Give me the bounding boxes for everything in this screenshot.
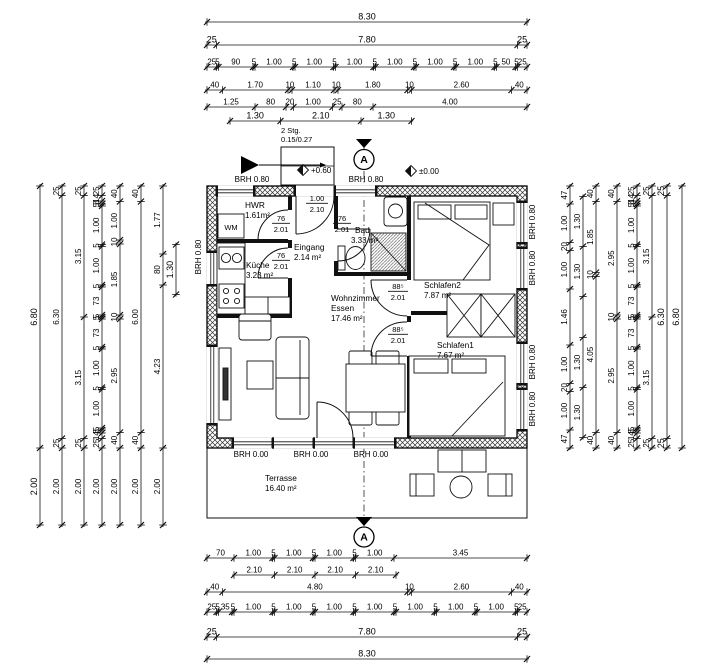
room-name-hwr: HWR bbox=[245, 200, 265, 210]
dim-label: 5 bbox=[433, 603, 438, 612]
living-room-furniture bbox=[219, 314, 309, 420]
dim-label: 2.10 bbox=[246, 566, 262, 575]
door-size-schlafen2-door: 88⁵ bbox=[392, 282, 403, 291]
dim-label: 25 bbox=[207, 35, 217, 45]
dim-label: 1.30 bbox=[573, 404, 582, 420]
room-name-kueche: Küche bbox=[246, 260, 270, 270]
door-size-schlafen2-door: 2.01 bbox=[391, 293, 406, 302]
dim-label: 1.00 bbox=[305, 98, 321, 107]
dim-label: 3.15 bbox=[74, 248, 83, 264]
dim-label: 1.77 bbox=[153, 212, 162, 228]
dim-label: 1.00 bbox=[245, 549, 261, 558]
dim-label: 2.00 bbox=[110, 478, 119, 494]
dim-label: 5 bbox=[453, 58, 458, 67]
dim-label: 70 bbox=[216, 549, 225, 558]
dim-label: 1.00 bbox=[627, 400, 636, 416]
dim-label: 5 bbox=[627, 243, 636, 248]
floor-plan-drawing: 8.30257.80252559051.0051.0051.0051.0051.… bbox=[0, 0, 714, 672]
dim-label: 1.00 bbox=[560, 215, 569, 231]
dim-label: 4.05 bbox=[586, 346, 595, 362]
dim-label: 25 bbox=[52, 438, 61, 447]
dim-label: 1.00 bbox=[266, 58, 282, 67]
room-area-bad: 3.33 m² bbox=[351, 236, 378, 245]
dim-label: 1.00 bbox=[627, 257, 636, 273]
dim-label: 5 bbox=[413, 58, 418, 67]
door-size-schlafen1-door: 2.01 bbox=[391, 336, 406, 345]
dim-label: 1.00 bbox=[407, 603, 423, 612]
brh-label: BRH 0.00 bbox=[234, 450, 269, 459]
terrace-furniture bbox=[410, 450, 512, 498]
dining-set bbox=[346, 351, 405, 425]
dim-label: 47 bbox=[560, 434, 569, 443]
dim-label: 10 bbox=[405, 583, 414, 592]
dim-label: 1.10 bbox=[305, 81, 321, 90]
room-name-terrasse: Terrasse bbox=[265, 473, 297, 483]
dim-label: 5 bbox=[92, 315, 101, 320]
dim-label: 73 bbox=[92, 296, 101, 305]
dim-label: 1.30 bbox=[573, 263, 582, 279]
dim-label: 47 bbox=[560, 190, 569, 199]
dim-label: 10 bbox=[607, 312, 616, 321]
dim-label: 1.46 bbox=[560, 309, 569, 325]
dim-label: 7.80 bbox=[358, 627, 376, 637]
dim-label: 4.80 bbox=[307, 583, 323, 592]
dim-label: 1.00 bbox=[560, 402, 569, 418]
dim-label: 1.70 bbox=[247, 81, 263, 90]
dim-label: 8.30 bbox=[358, 12, 376, 22]
dim-label: 1.30 bbox=[573, 354, 582, 370]
dim-label: 40 bbox=[210, 583, 219, 592]
dim-label: 5 bbox=[231, 603, 236, 612]
door-size-bad-door: 2.01 bbox=[335, 225, 350, 234]
dim-label: 6.00 bbox=[131, 309, 140, 325]
dim-label: 5 bbox=[92, 345, 101, 350]
brh-label: BRH 0.80 bbox=[349, 175, 384, 184]
dim-label: 40 bbox=[210, 81, 219, 90]
dim-label: 5 bbox=[271, 549, 276, 558]
dim-label: 80 bbox=[153, 265, 162, 274]
dim-label: 2.60 bbox=[454, 81, 470, 90]
dim-label: 1.00 bbox=[627, 217, 636, 233]
dim-label: 3.15 bbox=[642, 248, 651, 264]
door-size-hwr-door: 76 bbox=[277, 214, 285, 223]
brh-label: BRH 0.00 bbox=[294, 450, 329, 459]
dim-label: 5 bbox=[92, 386, 101, 391]
dim-label: 25 bbox=[518, 603, 527, 612]
dim-label: 14 bbox=[627, 431, 636, 440]
dim-label: 2.00 bbox=[131, 478, 140, 494]
dim-label: 40 bbox=[586, 189, 595, 198]
room-name-schlafen1: Schlafen1 bbox=[437, 340, 474, 350]
dim-label: 40 bbox=[131, 435, 140, 444]
dim-label: 40 bbox=[110, 435, 119, 444]
dim-label: 1.00 bbox=[560, 261, 569, 277]
dim-label: 1.00 bbox=[110, 212, 119, 228]
dim-label: 2.60 bbox=[454, 583, 470, 592]
dim-label: 1.30 bbox=[378, 111, 396, 121]
dim-label: 5 bbox=[332, 58, 337, 67]
stairs-note: 0.15/0.27 bbox=[281, 135, 312, 144]
dim-label: 1.30 bbox=[246, 111, 264, 121]
room-name-eingang: Eingang bbox=[294, 242, 325, 252]
dim-label: 5 bbox=[627, 283, 636, 288]
dim-label: 5 bbox=[312, 603, 317, 612]
dim-label: 5 bbox=[92, 283, 101, 288]
dim-label: 5 bbox=[215, 603, 220, 612]
dim-label: 80 bbox=[353, 98, 362, 107]
level-ground: ±0.00 bbox=[419, 167, 440, 176]
wardrobe bbox=[447, 294, 515, 337]
dim-label: 25 bbox=[518, 58, 527, 67]
dim-label: 40 bbox=[110, 189, 119, 198]
dim-label: 73 bbox=[627, 328, 636, 337]
dim-label: 25 bbox=[517, 35, 527, 45]
dim-label: 25 bbox=[74, 186, 83, 195]
dim-label: 2.95 bbox=[607, 250, 616, 266]
dim-label: 25 bbox=[656, 438, 666, 448]
dim-label: 35 bbox=[221, 603, 230, 612]
dim-label: 1.00 bbox=[326, 603, 342, 612]
dim-label: 10 bbox=[110, 237, 119, 246]
dim-label: 2.10 bbox=[312, 111, 330, 121]
dim-label: 1.00 bbox=[560, 356, 569, 372]
dim-label: 25 bbox=[627, 186, 636, 195]
dim-label: 2.00 bbox=[92, 478, 101, 494]
door-size-bad-door: 76 bbox=[338, 214, 346, 223]
dim-label: 5 bbox=[393, 603, 398, 612]
dim-label: 40 bbox=[131, 189, 140, 198]
bed-schlafen2 bbox=[414, 202, 514, 280]
dim-label: 1.00 bbox=[245, 603, 261, 612]
dim-label: 25 bbox=[642, 186, 651, 195]
dim-label: 10 bbox=[332, 81, 341, 90]
dim-label: 1.00 bbox=[387, 58, 403, 67]
dim-label: 25 bbox=[333, 98, 342, 107]
dim-label: 20 bbox=[560, 383, 569, 392]
brh-label: BRH 0.80 bbox=[528, 250, 537, 285]
dim-label: 1.80 bbox=[365, 81, 381, 90]
dim-label: 73 bbox=[92, 328, 101, 337]
dim-label: 5 bbox=[372, 58, 377, 67]
dim-label: 50 bbox=[501, 58, 510, 67]
room-name2-wohnzimmer: Essen bbox=[331, 303, 354, 313]
dim-label: 73 bbox=[627, 296, 636, 305]
dim-label: 1.00 bbox=[92, 360, 101, 376]
dim-label: 10 bbox=[110, 312, 119, 321]
door-size-schlafen1-door: 88⁵ bbox=[392, 325, 403, 334]
dim-label: 1.00 bbox=[286, 549, 302, 558]
dim-label: 10 bbox=[586, 270, 595, 279]
dim-label: 10 bbox=[405, 81, 414, 90]
dim-label: 40 bbox=[607, 435, 616, 444]
room-area-schlafen2: 7.87 m² bbox=[424, 291, 451, 300]
dim-label: 1.00 bbox=[347, 58, 363, 67]
dim-label: 25 bbox=[74, 438, 83, 447]
brh-label: BRH 0.80 bbox=[528, 391, 537, 426]
dim-label: 25 bbox=[656, 186, 666, 196]
dim-label: 5 bbox=[352, 603, 357, 612]
dim-label: 14 bbox=[92, 431, 101, 440]
brh-label: BRH 0.00 bbox=[354, 450, 389, 459]
dim-label: 4.23 bbox=[153, 358, 162, 374]
dim-label: 1.00 bbox=[367, 549, 383, 558]
dim-label: 1.00 bbox=[286, 603, 302, 612]
dim-label: 1.30 bbox=[573, 213, 582, 229]
dim-label: 25 bbox=[642, 438, 651, 447]
dim-label: 1.00 bbox=[92, 217, 101, 233]
room-area-eingang: 2.14 m² bbox=[294, 253, 321, 262]
dim-label: 1.00 bbox=[467, 58, 483, 67]
dim-label: 5 bbox=[215, 58, 220, 67]
brh-label: BRH 0.80 bbox=[528, 204, 537, 239]
dim-label: 5 bbox=[312, 549, 317, 558]
dim-label: 3.15 bbox=[74, 369, 83, 385]
section-letter-top: A bbox=[360, 154, 368, 166]
dim-label: 3.15 bbox=[642, 369, 651, 385]
dim-label: 5 bbox=[92, 243, 101, 248]
dim-label: 25 bbox=[92, 186, 101, 195]
door-size-entrance-door: 1.00 bbox=[310, 194, 325, 203]
door-size-entrance-door: 2.10 bbox=[310, 205, 325, 214]
brh-label: BRH 0.80 bbox=[194, 239, 203, 274]
brh-label: BRH 0.80 bbox=[235, 175, 270, 184]
dim-label: 5 bbox=[627, 386, 636, 391]
dim-label: 8.30 bbox=[358, 649, 376, 659]
dim-label: 2.10 bbox=[368, 566, 384, 575]
room-area-wohnzimmer: 17.46 m² bbox=[331, 314, 363, 323]
dim-label: 5 bbox=[252, 58, 257, 67]
dim-label: 25 bbox=[207, 627, 217, 637]
dim-label: 5 bbox=[474, 603, 479, 612]
door-size-kueche-door: 2.01 bbox=[274, 262, 289, 271]
dim-label: 25 bbox=[52, 186, 61, 195]
dim-label: 2.00 bbox=[52, 478, 61, 494]
dim-label: 6.80 bbox=[29, 308, 39, 326]
dim-label: 40 bbox=[586, 435, 595, 444]
dim-label: 40 bbox=[515, 583, 524, 592]
door-size-hwr-door: 2.01 bbox=[274, 225, 289, 234]
dim-label: 5 bbox=[271, 603, 276, 612]
dim-label: 1.00 bbox=[92, 257, 101, 273]
washing-machine-label: WM bbox=[224, 223, 237, 232]
door-size-kueche-door: 76 bbox=[277, 251, 285, 260]
dim-label: 5 bbox=[627, 345, 636, 350]
dim-label: 20 bbox=[560, 241, 569, 250]
dim-label: 40 bbox=[607, 189, 616, 198]
dim-label: 1.00 bbox=[367, 603, 383, 612]
dim-label: 1.00 bbox=[488, 603, 504, 612]
dim-label: 2.00 bbox=[29, 478, 39, 496]
dim-label: 1.00 bbox=[448, 603, 464, 612]
dim-label: 2.10 bbox=[287, 566, 303, 575]
dim-label: 20 bbox=[285, 98, 294, 107]
dim-label: 90 bbox=[231, 58, 240, 67]
dim-label: 2.95 bbox=[607, 367, 616, 383]
dim-label: 25 bbox=[627, 438, 636, 447]
dim-label: 25 bbox=[517, 627, 527, 637]
dim-label: 5 bbox=[92, 202, 101, 207]
dim-label: 2.00 bbox=[153, 478, 162, 494]
dim-label: 3.45 bbox=[453, 549, 469, 558]
room-name-bad: Bad bbox=[355, 225, 370, 235]
dim-label: 6.30 bbox=[52, 309, 61, 325]
dim-label: 80 bbox=[266, 98, 275, 107]
room-name-schlafen2: Schlafen2 bbox=[424, 280, 461, 290]
dim-label: 7.80 bbox=[358, 35, 376, 45]
room-name-wohnzimmer: Wohnzimmer bbox=[331, 293, 380, 303]
dim-label: 6.80 bbox=[671, 308, 681, 326]
dim-label: 1.00 bbox=[326, 549, 342, 558]
dim-label: 25 bbox=[92, 438, 101, 447]
room-area-hwr: 1.61m² bbox=[245, 211, 270, 220]
dim-label: 5 bbox=[292, 58, 297, 67]
dim-label: 1.30 bbox=[165, 261, 175, 279]
dim-label: 5 bbox=[627, 202, 636, 207]
stairs-note: 2 Stg. bbox=[281, 126, 301, 135]
dim-label: 5 bbox=[352, 549, 357, 558]
dim-label: 2.00 bbox=[74, 478, 83, 494]
dim-label: 6.30 bbox=[656, 308, 666, 326]
bed-schlafen1 bbox=[409, 356, 505, 436]
dim-label: 1.00 bbox=[627, 360, 636, 376]
dim-label: 1.00 bbox=[307, 58, 323, 67]
dim-label: 5 bbox=[627, 315, 636, 320]
room-area-terrasse: 16.40 m² bbox=[265, 484, 297, 493]
dim-label: 1.00 bbox=[427, 58, 443, 67]
dim-label: 40 bbox=[515, 81, 524, 90]
dim-label: 1.00 bbox=[92, 400, 101, 416]
dim-label: 1.85 bbox=[110, 271, 119, 287]
room-area-kueche: 3.23 m² bbox=[246, 271, 273, 280]
dim-label: 4.00 bbox=[442, 98, 458, 107]
generated-labels-and-dimensions: 8.30257.80252559051.0051.0051.0051.0051.… bbox=[29, 12, 686, 663]
dim-label: 2.95 bbox=[110, 367, 119, 383]
dim-label: 2.10 bbox=[327, 566, 343, 575]
brh-label: BRH 0.80 bbox=[528, 344, 537, 379]
section-letter-bottom: A bbox=[360, 532, 368, 544]
dim-label: 5 bbox=[493, 58, 498, 67]
dim-label: 1.85 bbox=[586, 229, 595, 245]
level-entrance: +0.60 bbox=[311, 166, 332, 175]
dim-label: 1.25 bbox=[223, 98, 239, 107]
room-area-schlafen1: 7.67 m² bbox=[437, 351, 464, 360]
dim-label: 10 bbox=[285, 81, 294, 90]
